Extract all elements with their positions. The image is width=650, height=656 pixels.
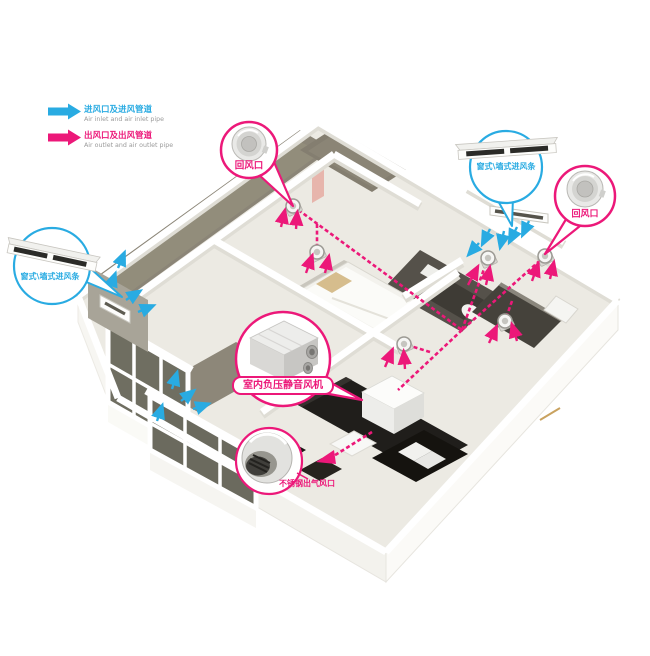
legend-outlet-sublabel: Air outlet and air outlet pipe (84, 142, 173, 148)
callout-steel-outlet-label: 不锈钢出气风口 (279, 480, 335, 488)
callout-return-air-top-label: 回风口 (235, 161, 264, 171)
ventilation-diagram: 进风口及进风管道 Air inlet and air inlet pipe 出风… (0, 0, 650, 656)
inlet-strip-icon (456, 137, 559, 159)
steel-outlet-icon (242, 433, 292, 483)
outlet-arrow-icon (48, 130, 81, 146)
callout-indoor-fan-label: 室内负压静音风机 (243, 381, 323, 391)
legend-inlet-sublabel: Air inlet and air inlet pipe (84, 116, 164, 122)
house-isometric-illustration (0, 0, 650, 656)
callout-return-air-right-label: 回风口 (571, 211, 598, 220)
callout-window-inlet-right-label: 窗式\墙式进风条 (477, 163, 536, 171)
inlet-arrow-icon (48, 104, 81, 120)
legend-inlet-label: 进风口及进风管道 (84, 106, 152, 115)
callout-window-inlet-left-label: 窗式\墙式进风条 (21, 273, 80, 281)
legend-arrows (48, 104, 81, 146)
legend-outlet-label: 出风口及出风管道 (84, 132, 152, 141)
